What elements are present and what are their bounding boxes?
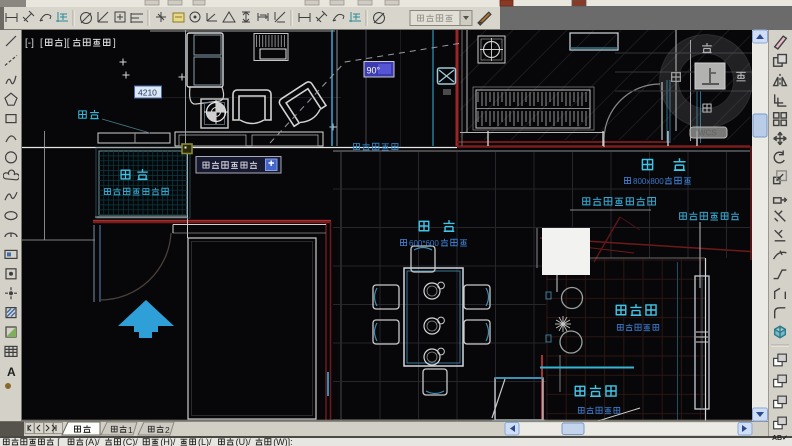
- svg-text:A: A: [7, 365, 16, 379]
- svg-text:]: ]: [113, 38, 116, 49]
- svg-text:[: [: [40, 38, 43, 49]
- svg-text:(W)]:: (W)]:: [273, 437, 293, 446]
- svg-text:(L)/: (L)/: [198, 437, 212, 446]
- svg-text:4210: 4210: [138, 88, 157, 98]
- svg-text:(U)/: (U)/: [236, 437, 251, 446]
- svg-text:600*600: 600*600: [409, 239, 439, 248]
- svg-text:(C)/: (C)/: [123, 437, 138, 446]
- svg-text:90°: 90°: [367, 66, 381, 76]
- svg-text:[-]: [-]: [25, 38, 34, 49]
- svg-text:1: 1: [128, 425, 133, 435]
- svg-text:(A)/: (A)/: [85, 437, 100, 446]
- svg-text:2: 2: [165, 425, 170, 435]
- svg-text:[: [: [57, 437, 60, 446]
- svg-text:WCS: WCS: [698, 129, 717, 138]
- svg-text:(H)/: (H)/: [160, 437, 175, 446]
- svg-text:800x800: 800x800: [633, 177, 664, 186]
- svg-text:AB✓: AB✓: [772, 435, 788, 442]
- svg-text:][: ][: [64, 38, 70, 49]
